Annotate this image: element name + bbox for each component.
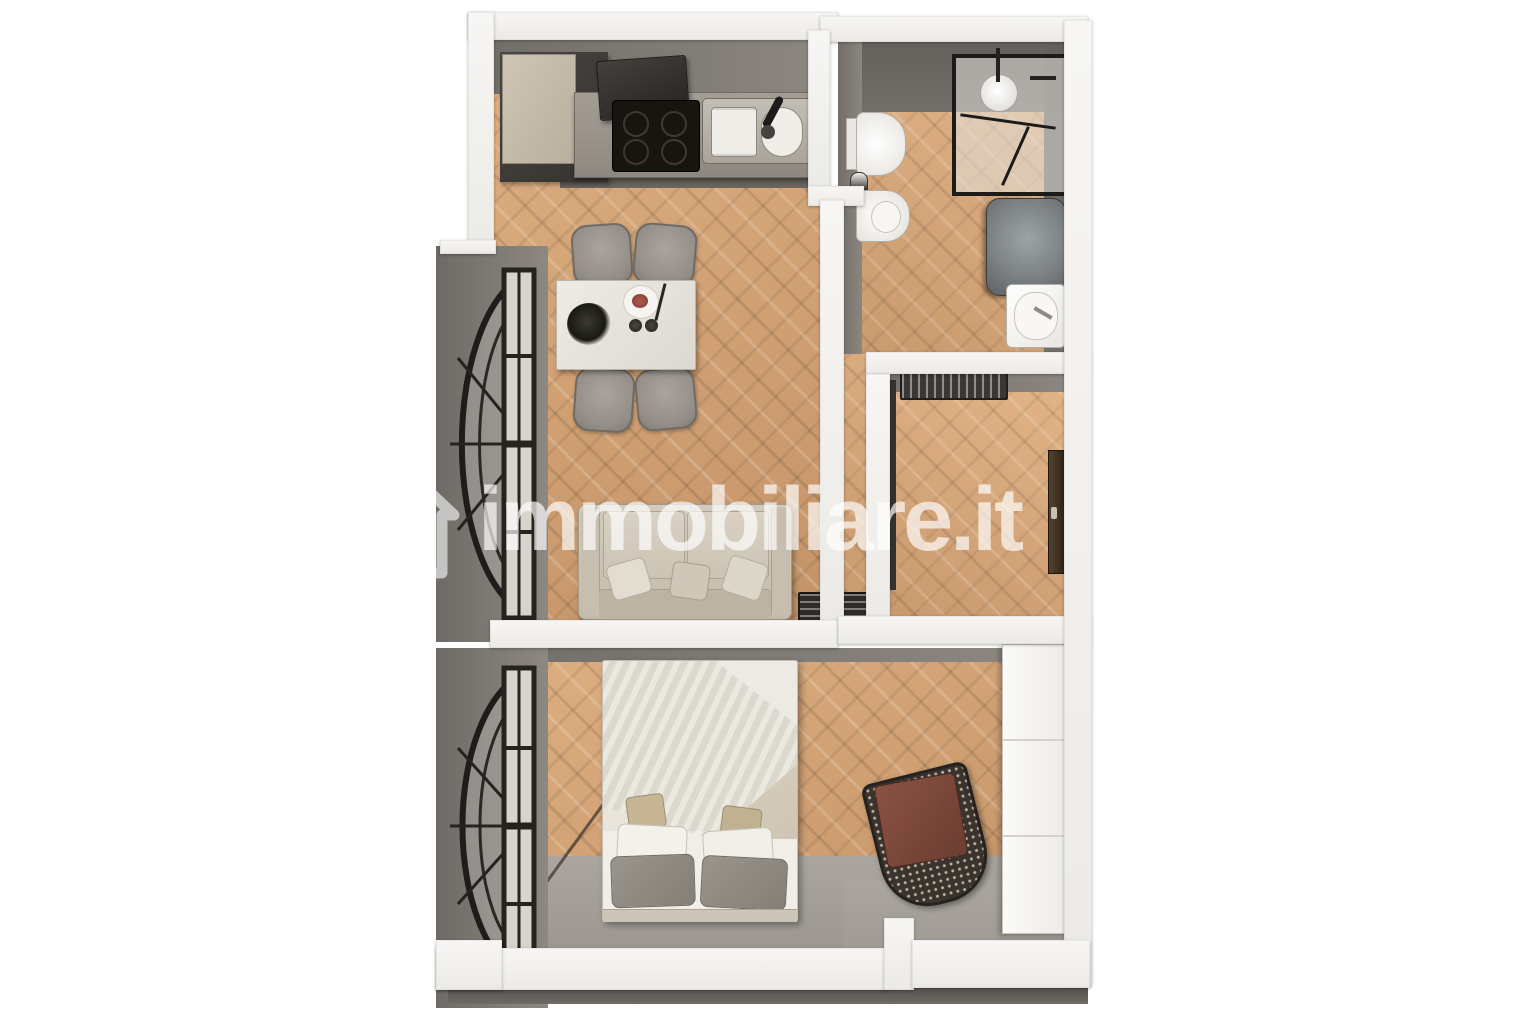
wall-bottom-left-corner [436,940,502,990]
dining-chair [570,222,634,288]
cooktop [612,100,700,172]
sofa-armrest-left [581,507,600,615]
floor-plan-canvas: immobiliare.it [0,0,1536,1024]
wall-bottom-right [912,940,1090,988]
toilet-bowl [856,112,906,176]
shower-door [960,113,1055,129]
sofa [578,504,792,620]
wardrobe-seam [1003,835,1067,837]
burner [623,139,649,165]
wall-bay-stub [440,240,496,254]
wall-living-bed-divider [490,620,838,648]
faucet-base [761,125,775,139]
table-plant [567,303,611,345]
living-room-window-bay [436,246,548,642]
wall-hall-bed-divider [838,616,1090,644]
bidet-basin [871,201,901,233]
wardrobe-seam [1003,739,1067,741]
bed-base-edge [603,909,797,922]
dining-chair [631,221,698,288]
armchair-cushion [873,772,968,869]
hall-floor [890,374,1066,620]
gray-pillow [610,854,696,909]
tall-cabinet-top [502,54,576,164]
wall-living-right [820,200,844,624]
gray-pillow [700,855,789,911]
shower-mixer [1030,76,1056,80]
washbasin [1006,284,1066,348]
bidet [856,190,910,242]
sink-basin-left [711,107,757,157]
wall-hall-left [866,374,890,624]
toilet [846,112,906,174]
living-room-arched-window [436,246,548,642]
burner [623,111,649,137]
wardrobe [1002,644,1070,934]
dining-chair [572,366,636,434]
wall-top-right [820,16,1088,42]
wall-bottom-left [436,948,888,990]
burner [661,111,687,137]
wall-top [468,12,838,40]
double-bed [602,660,798,922]
shower-riser [996,48,1000,82]
wall-kitchen-bath [808,30,830,192]
burner [661,139,687,165]
small-bowl [629,319,642,332]
sofa-pillow [669,561,712,602]
food [632,294,648,308]
dining-chair [633,366,698,433]
plate-with-food [623,285,659,319]
small-bowl [645,319,658,332]
foundation-shadow [448,988,1088,1004]
shower-glass-divider [1001,126,1030,186]
water-heater-cylinder [986,198,1066,296]
open-door-leaf [890,380,896,590]
wall-below-bathroom [866,352,1090,374]
kitchen-sink [702,98,814,164]
dining-table [556,280,696,370]
shower-enclosure [952,54,1070,196]
wall-right [1064,20,1092,986]
door-handle [1051,507,1057,519]
sofa-armrest-right [771,507,790,615]
wall-bottom-pillar [884,918,914,990]
wall-left-upper [468,12,494,252]
